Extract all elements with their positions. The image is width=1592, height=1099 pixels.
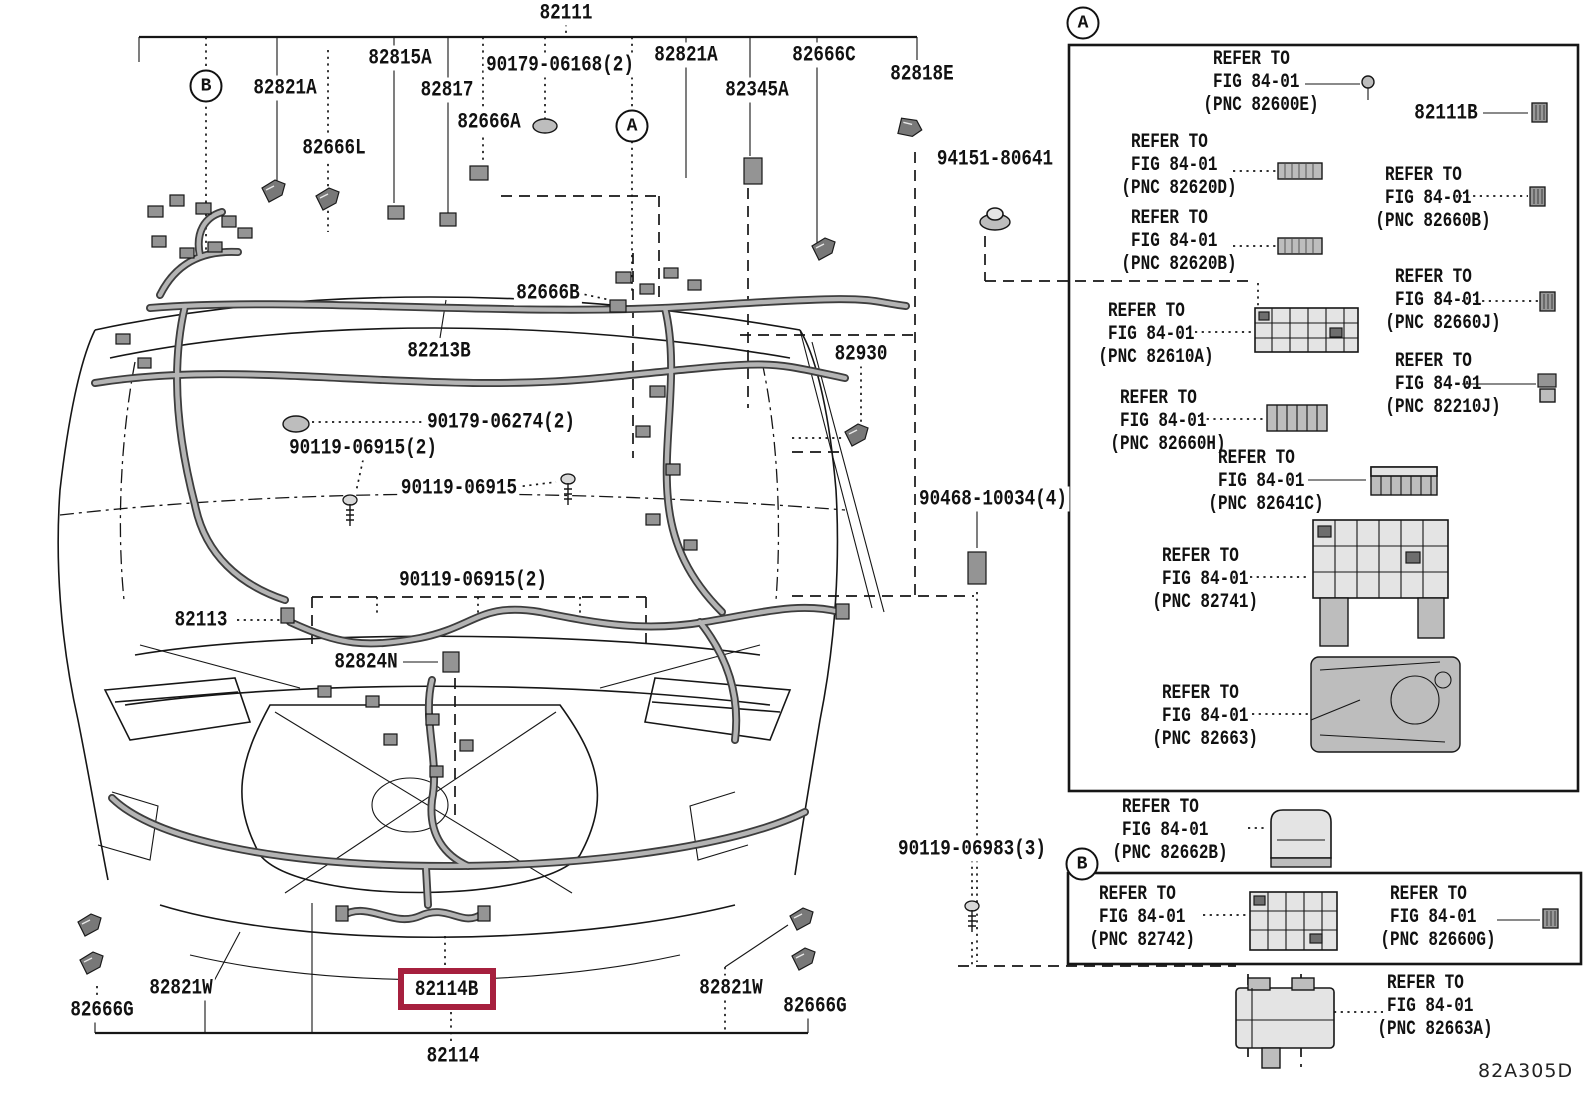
part-label-82345a[interactable]: 82345A	[723, 78, 791, 103]
refer-entry-82660j: REFER TOFIG 84-01(PNC 82660J)	[1395, 266, 1501, 335]
refer-entry-82610a: REFER TOFIG 84-01(PNC 82610A)	[1108, 300, 1214, 369]
refer-entry-82620b: REFER TOFIG 84-01(PNC 82620B)	[1131, 207, 1237, 276]
highlight-box-82114b[interactable]: 82114B	[398, 968, 496, 1010]
refer-entry-82210j: REFER TOFIG 84-01(PNC 82210J)	[1395, 350, 1501, 419]
refer-entry-82660h: REFER TOFIG 84-01(PNC 82660H)	[1120, 387, 1226, 456]
part-label-82821w-right[interactable]: 82821W	[697, 976, 765, 1001]
parts-diagram-page: 82111 B 82821A 82815A 82817 90179-06168(…	[0, 0, 1592, 1099]
part-label-82111b[interactable]: 82111B	[1412, 101, 1480, 126]
part-label-82821w-left[interactable]: 82821W	[147, 976, 215, 1001]
refer-entry-82662b: REFER TOFIG 84-01(PNC 82662B)	[1122, 796, 1228, 865]
section-marker-a: A	[616, 110, 649, 143]
part-label-82111[interactable]: 82111	[537, 1, 595, 26]
part-label-82666l[interactable]: 82666L	[300, 136, 368, 161]
refer-entry-82742: REFER TOFIG 84-01(PNC 82742)	[1099, 883, 1195, 952]
refer-entry-82663a: REFER TOFIG 84-01(PNC 82663A)	[1387, 972, 1493, 1041]
refer-entry-82600e: REFER TOFIG 84-01(PNC 82600E)	[1213, 48, 1319, 117]
figure-code: 82A305D	[1478, 1060, 1573, 1082]
part-label-82930[interactable]: 82930	[832, 342, 890, 367]
part-label-82213b[interactable]: 82213B	[405, 339, 473, 364]
part-label-94151-80641[interactable]: 94151-80641	[935, 147, 1056, 172]
part-label-82821a-left[interactable]: 82821A	[251, 76, 319, 101]
part-label-90119-06915[interactable]: 90119-06915	[399, 476, 520, 501]
part-label-90179-06168[interactable]: 90179-06168(2)	[484, 53, 637, 78]
part-label-82817[interactable]: 82817	[418, 78, 476, 103]
part-label-82818e[interactable]: 82818E	[888, 62, 956, 87]
section-marker-b: B	[190, 70, 223, 103]
part-label-82824n[interactable]: 82824N	[332, 650, 400, 675]
part-label-90468-10034[interactable]: 90468-10034(4)	[917, 487, 1070, 512]
part-label-82815a[interactable]: 82815A	[366, 46, 434, 71]
part-label-82666b[interactable]: 82666B	[514, 281, 582, 306]
refer-entry-82620d: REFER TOFIG 84-01(PNC 82620D)	[1131, 131, 1237, 200]
part-label-90119-06915-2a[interactable]: 90119-06915(2)	[287, 436, 440, 461]
car-body-outline	[58, 297, 884, 980]
part-label-82821a-right[interactable]: 82821A	[652, 43, 720, 68]
part-label-90119-06915-2b[interactable]: 90119-06915(2)	[397, 568, 550, 593]
wiring-harness	[95, 212, 906, 919]
refer-entry-82741: REFER TOFIG 84-01(PNC 82741)	[1162, 545, 1258, 614]
refer-entry-82660b: REFER TOFIG 84-01(PNC 82660B)	[1385, 164, 1491, 233]
part-label-82113[interactable]: 82113	[172, 608, 230, 633]
part-label-82666g-right[interactable]: 82666G	[781, 994, 849, 1019]
refer-entry-82663: REFER TOFIG 84-01(PNC 82663)	[1162, 682, 1258, 751]
refer-entry-82641c: REFER TOFIG 84-01(PNC 82641C)	[1218, 447, 1324, 516]
part-label-90119-06983[interactable]: 90119-06983(3)	[896, 837, 1049, 862]
part-label-82666a[interactable]: 82666A	[455, 110, 523, 135]
panel-a-marker: A	[1067, 7, 1100, 40]
part-label-82114b[interactable]: 82114B	[415, 977, 478, 1002]
part-label-82666g-left[interactable]: 82666G	[68, 998, 136, 1023]
panel-b-marker: B	[1066, 848, 1099, 881]
wiring-diagram-illustration	[0, 0, 1592, 1099]
part-label-82666c[interactable]: 82666C	[790, 43, 858, 68]
part-label-82114[interactable]: 82114	[424, 1044, 482, 1069]
refer-entry-82660g: REFER TOFIG 84-01(PNC 82660G)	[1390, 883, 1496, 952]
part-label-90179-06274[interactable]: 90179-06274(2)	[425, 410, 578, 435]
